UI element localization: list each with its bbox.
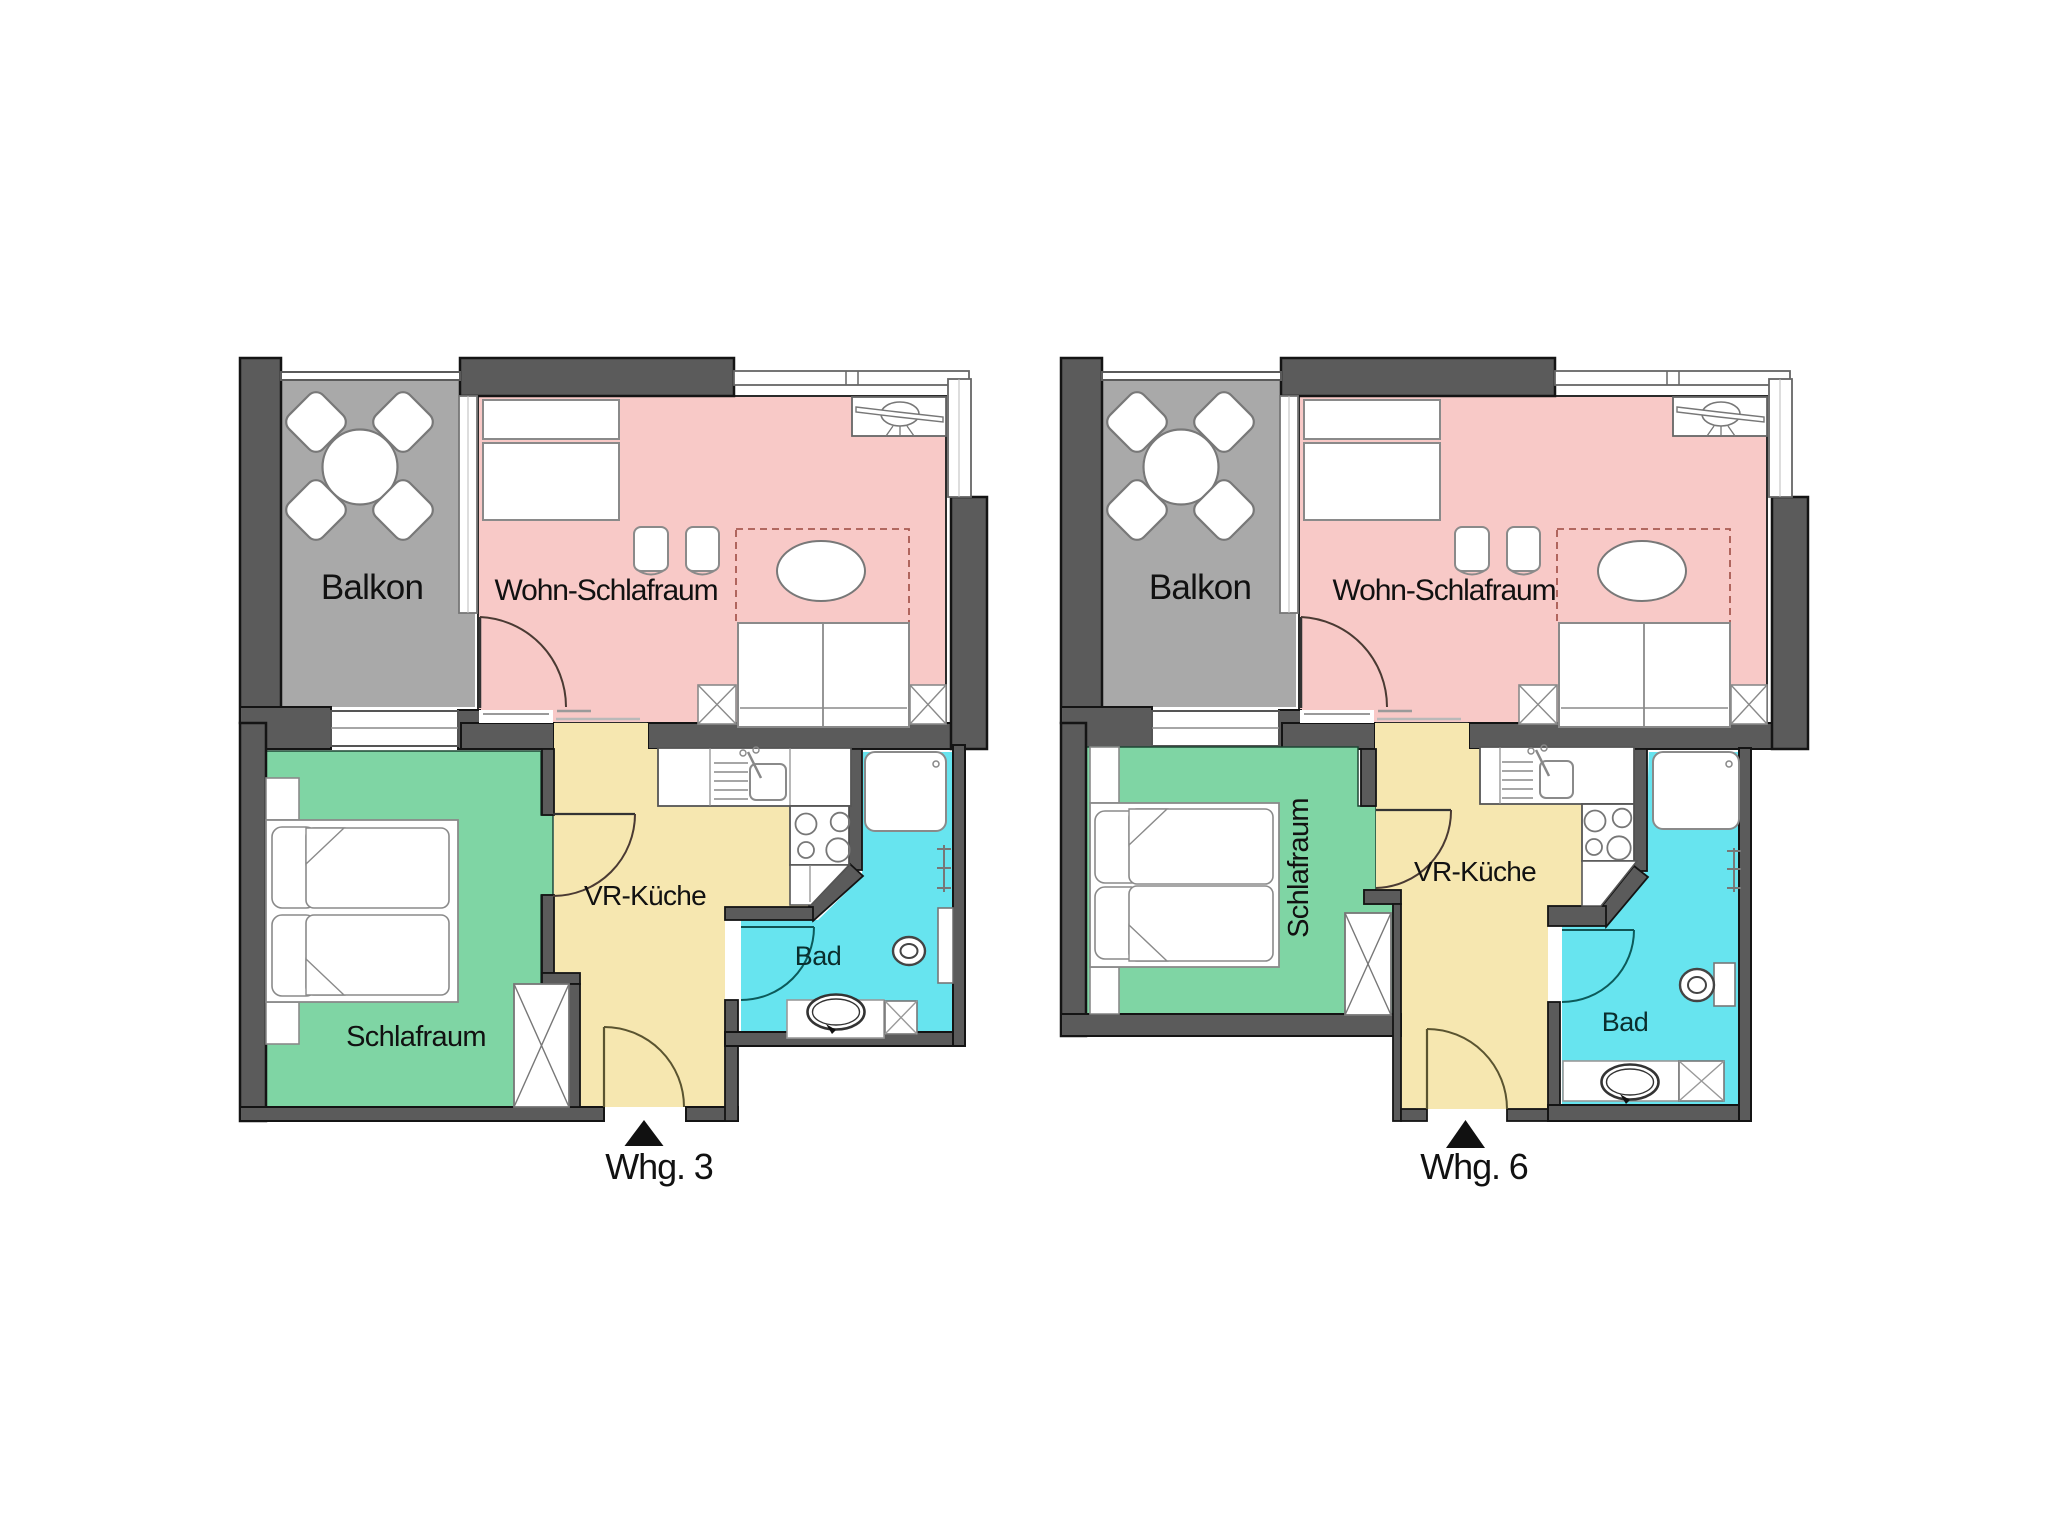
svg-text:Bad: Bad: [1602, 1007, 1649, 1037]
svg-text:Whg. 3: Whg. 3: [605, 1146, 713, 1187]
svg-text:VR-Küche: VR-Küche: [1414, 856, 1536, 887]
svg-text:Wohn-Schlafraum: Wohn-Schlafraum: [494, 574, 717, 607]
svg-text:Wohn-Schlafraum: Wohn-Schlafraum: [1332, 574, 1555, 607]
svg-text:VR-Küche: VR-Küche: [584, 880, 706, 911]
svg-text:Schlafraum: Schlafraum: [1283, 798, 1315, 938]
svg-text:Balkon: Balkon: [321, 568, 423, 607]
svg-text:Balkon: Balkon: [1149, 568, 1251, 607]
svg-text:Schlafraum: Schlafraum: [346, 1021, 486, 1053]
svg-text:Whg. 6: Whg. 6: [1420, 1146, 1528, 1187]
svg-text:Bad: Bad: [795, 941, 842, 971]
